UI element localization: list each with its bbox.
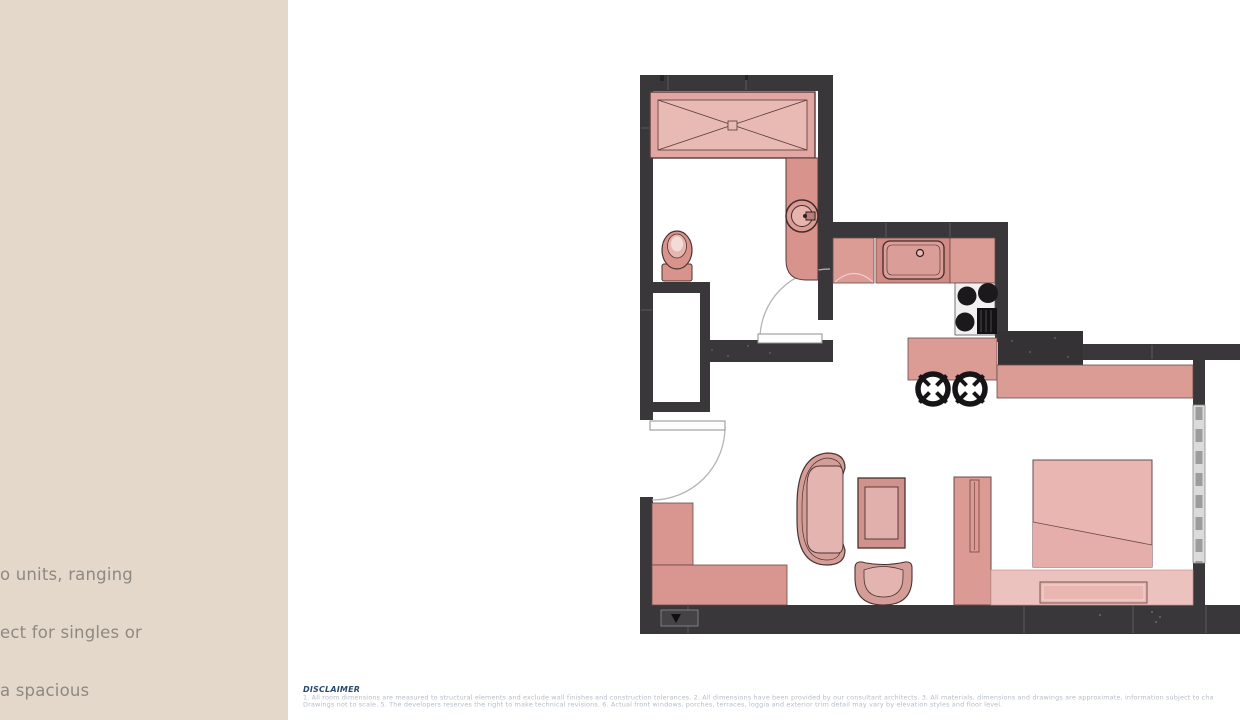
wall-right-lower [1193, 563, 1205, 634]
wall-strip-right [1083, 344, 1240, 360]
fridge-cabinet [833, 238, 874, 283]
island-counter [908, 338, 997, 380]
vanity-sink [786, 158, 818, 280]
disclaimer-title: DISCLAIMER [303, 685, 1240, 694]
kitchen [833, 238, 1193, 398]
pantry-block [998, 331, 1083, 367]
door-swing-arc [652, 427, 725, 500]
wall-shaft-bottom [648, 402, 710, 412]
burner [956, 313, 975, 332]
wall-kitchen-top [833, 222, 1007, 238]
toilet [662, 231, 692, 281]
l-shaped-seat [652, 503, 787, 605]
door-leaf [650, 421, 725, 430]
bar-stool [918, 374, 948, 404]
window [1193, 405, 1205, 563]
page: o units, ranging ect for singles or a sp… [0, 0, 1240, 720]
wall-bath-top [640, 75, 833, 91]
curved-sofa [797, 453, 845, 565]
long-counter [997, 365, 1193, 398]
door-leaf [758, 334, 822, 343]
wall-bath-right [818, 75, 833, 320]
burner [978, 283, 998, 303]
bar-stool [955, 374, 985, 404]
kitchen-sink [883, 241, 944, 279]
faucet [806, 212, 815, 220]
disclaimer-line-2: Drawings not to scale. 5. The developers… [303, 701, 1240, 708]
corner-counter [950, 238, 995, 283]
wall-right-upper [1193, 344, 1205, 405]
disclaimer: DISCLAIMER 1. All room dimensions are me… [303, 685, 1240, 710]
disclaimer-body: 1. All room dimensions are measured to s… [303, 694, 1240, 710]
shower [650, 92, 815, 158]
wall-bottom [640, 605, 1240, 634]
entry-door [650, 421, 725, 500]
section-marker [661, 610, 698, 626]
tub-chair [855, 562, 912, 605]
burner [958, 287, 977, 306]
coffee-table [858, 478, 905, 548]
oven-grill [977, 308, 997, 334]
sink-faucet [917, 250, 924, 257]
wardrobe [954, 477, 991, 605]
floor-plan [0, 0, 1240, 720]
